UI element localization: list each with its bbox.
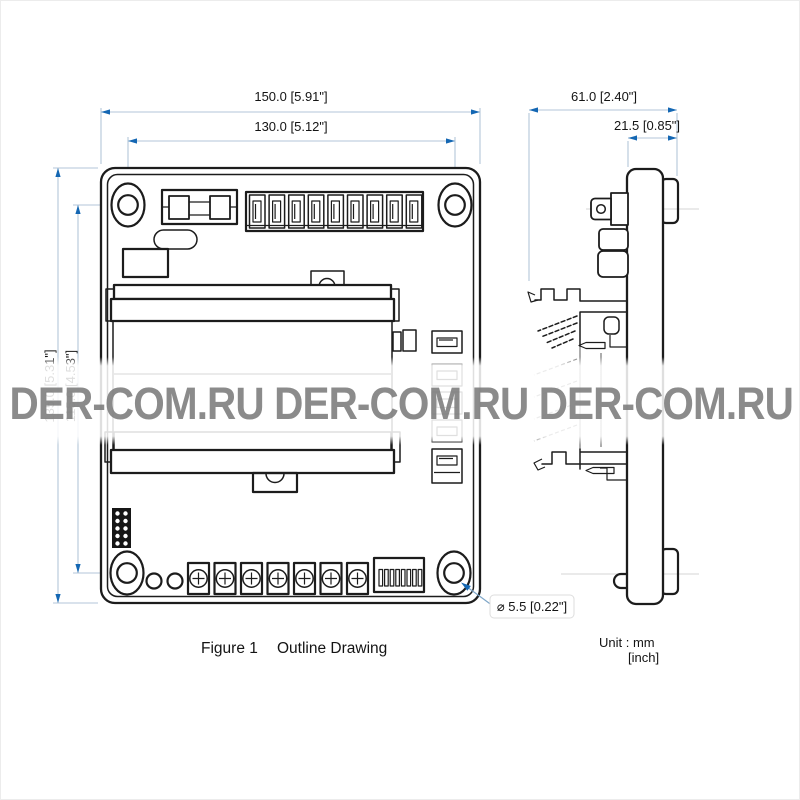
- front-body-outline: [101, 168, 480, 603]
- outline-drawing-svg: ⌀ 5.5 [0.22"] 150.0 [5.91"] 130.0 [5.12"…: [1, 1, 800, 800]
- dim-front-height: 135.0 [5.31"]: [42, 349, 57, 422]
- bottom-tab: [614, 574, 627, 588]
- component-block-2: [598, 251, 628, 277]
- dim-front-width-holes: 130.0 [5.12"]: [254, 119, 327, 134]
- unit-line1: Unit : mm: [599, 635, 655, 650]
- side-view: [528, 169, 699, 604]
- heatsink-middle: [534, 346, 601, 450]
- unit-line2: [inch]: [628, 650, 659, 665]
- heatsink-bottom: [534, 449, 627, 480]
- component-block-1: [599, 229, 628, 250]
- outline-drawing-page: ⌀ 5.5 [0.22"] 150.0 [5.91"] 130.0 [5.12"…: [0, 0, 800, 800]
- front-view: [101, 168, 480, 603]
- dim-side-plate: 21.5 [0.85"]: [614, 118, 680, 133]
- caption: Figure 1 Outline Drawing: [201, 640, 387, 657]
- upper-bus-bar: [106, 285, 399, 321]
- hole-diameter-label: ⌀ 5.5 [0.22"]: [497, 599, 567, 614]
- spade-terminal: [591, 193, 628, 225]
- dim-side-depth: 61.0 [2.40"]: [571, 89, 637, 104]
- unit-note: Unit : mm [inch]: [599, 635, 659, 665]
- dim-front-height-holes: 115.0 [4.53"]: [63, 350, 78, 422]
- dim-front-width: 150.0 [5.91"]: [254, 89, 327, 104]
- figure-title: Outline Drawing: [277, 640, 387, 657]
- heatsink-top: [528, 289, 627, 349]
- mounting-plate: [627, 169, 663, 604]
- pin-header: [112, 508, 131, 548]
- figure-label: Figure 1: [201, 640, 258, 657]
